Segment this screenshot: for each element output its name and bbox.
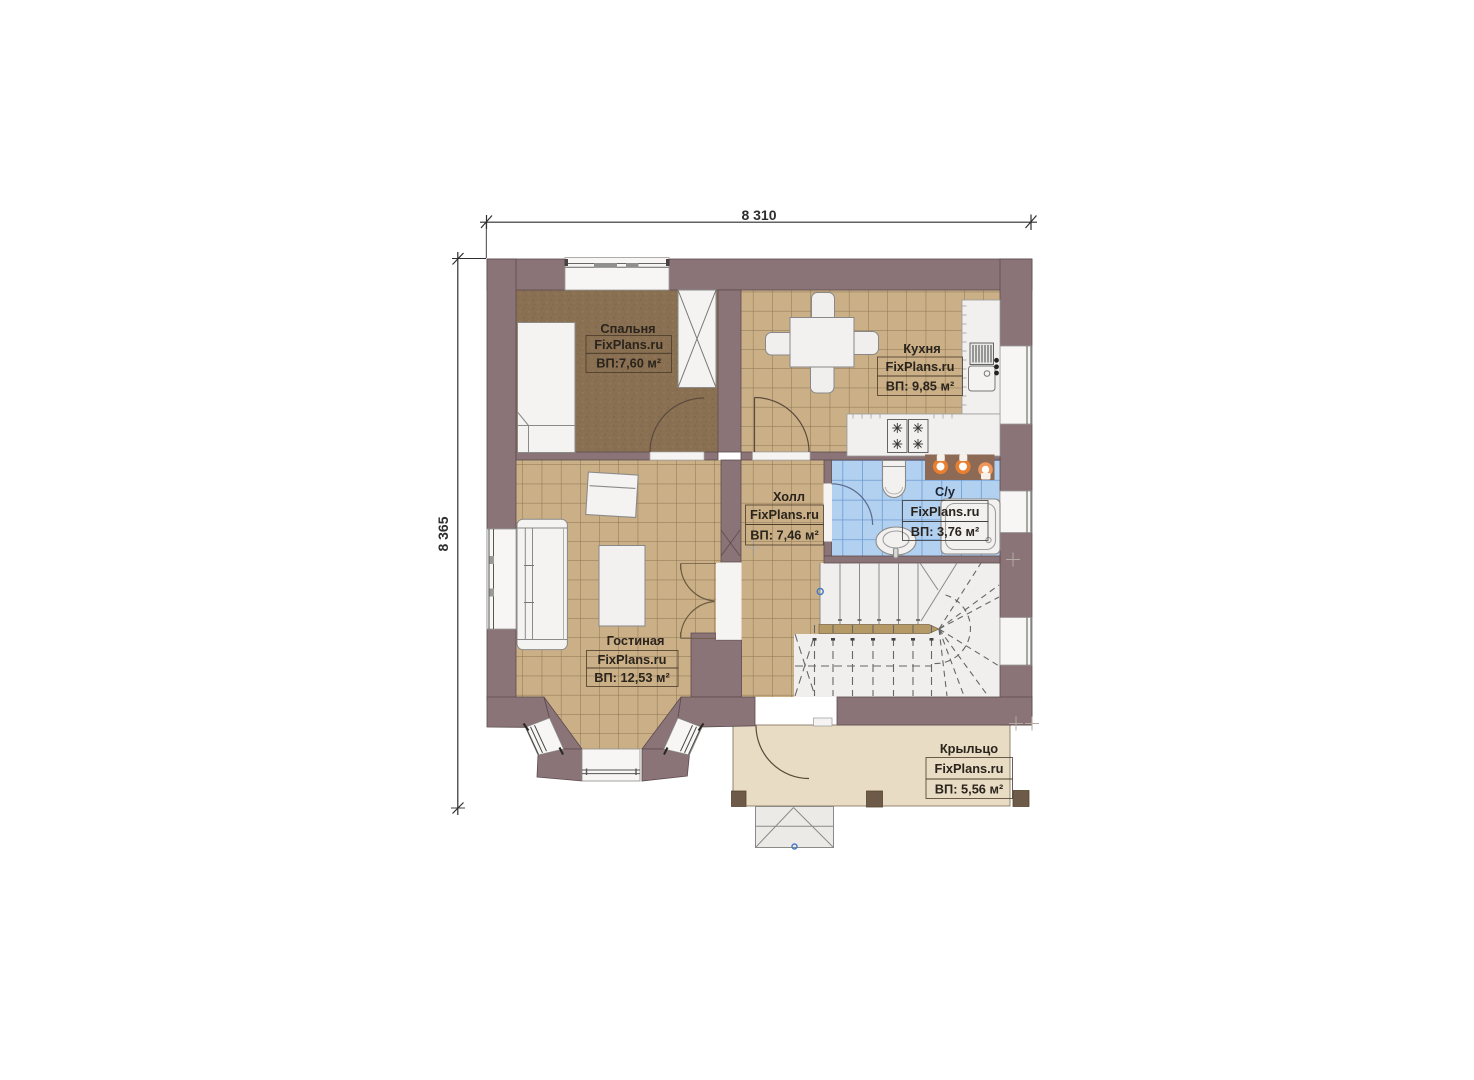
svg-text:FixPlans.ru: FixPlans.ru [935,761,1004,776]
svg-text:С/у: С/у [935,484,956,499]
svg-text:Спальня: Спальня [600,321,655,336]
svg-text:FixPlans.ru: FixPlans.ru [598,652,667,667]
svg-text:8 310: 8 310 [741,207,776,223]
svg-text:ВП: 9,85 м²: ВП: 9,85 м² [886,378,954,393]
svg-text:ВП: 7,46 м²: ВП: 7,46 м² [750,528,818,543]
svg-text:Крыльцо: Крыльцо [940,741,998,756]
svg-text:Холл: Холл [773,489,805,504]
svg-text:ВП:7,60 м²: ВП:7,60 м² [596,356,661,371]
svg-text:8 365: 8 365 [435,516,451,551]
svg-text:FixPlans.ru: FixPlans.ru [750,507,819,522]
svg-text:FixPlans.ru: FixPlans.ru [911,504,980,519]
svg-text:ВП: 5,56 м²: ВП: 5,56 м² [935,782,1003,797]
svg-text:Гостиная: Гостиная [607,633,665,648]
svg-text:ВП: 12,53 м²: ВП: 12,53 м² [594,670,670,685]
svg-text:FixPlans.ru: FixPlans.ru [886,359,955,374]
svg-text:ВП: 3,76 м²: ВП: 3,76 м² [911,524,979,539]
svg-text:Кухня: Кухня [903,341,940,356]
svg-text:FixPlans.ru: FixPlans.ru [594,337,663,352]
